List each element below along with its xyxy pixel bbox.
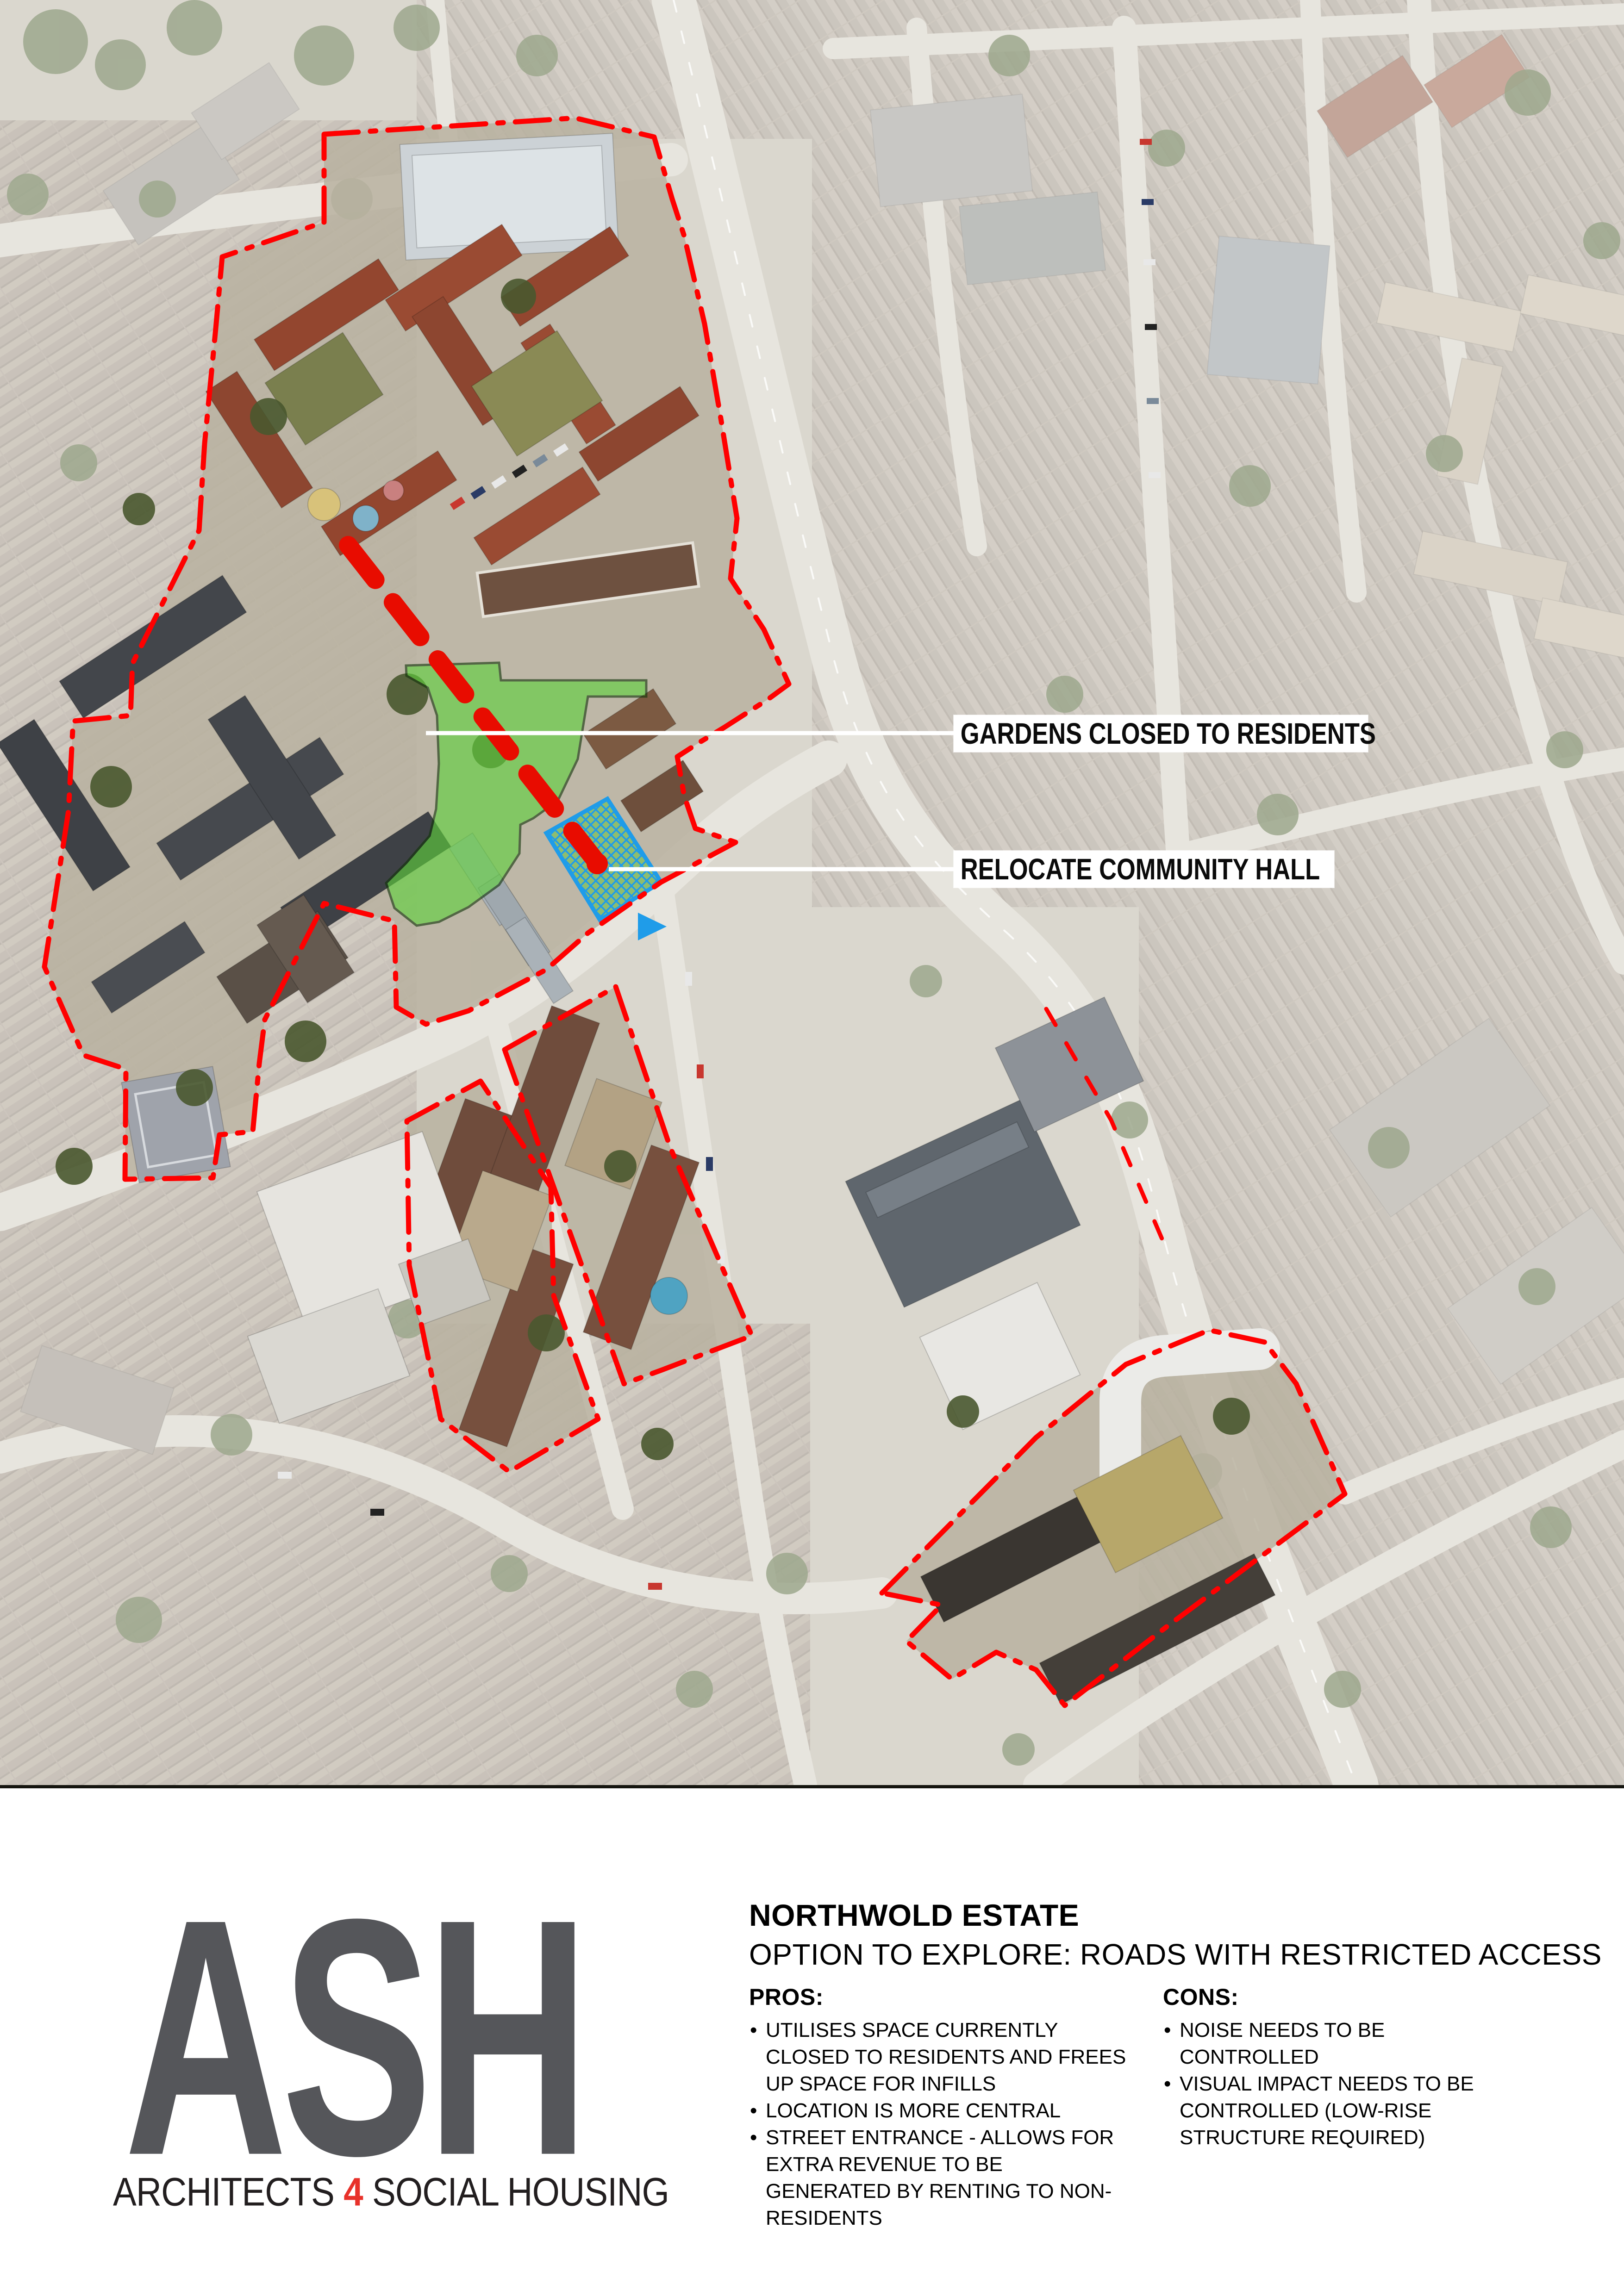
ash-tagline: ARCHITECTS 4 SOCIAL HOUSING <box>113 2170 669 2215</box>
tagline-architects: ARCHITECTS <box>113 2170 334 2215</box>
page-subtitle: OPTION TO EXPLORE: ROADS WITH RESTRICTED… <box>749 1937 1602 1972</box>
relocate-callout-text: RELOCATE COMMUNITY HALL <box>954 852 1320 886</box>
tagline-4: 4 <box>344 2170 362 2215</box>
pros-item: LOCATION IS MORE CENTRAL <box>749 2097 1129 2124</box>
poster-page: GARDENS CLOSED TO RESIDENTS RELOCATE COM… <box>0 0 1624 2296</box>
pros-list: UTILISES SPACE CURRENTLY CLOSED TO RESID… <box>749 2017 1129 2232</box>
cons-item: VISUAL IMPACT NEEDS TO BE CONTROLLED (LO… <box>1163 2071 1505 2151</box>
cons-column: CONS: NOISE NEEDS TO BE CONTROLLED VISUA… <box>1163 1984 1580 2151</box>
page-title: NORTHWOLD ESTATE <box>749 1898 1079 1933</box>
tagline-social-housing: SOCIAL HOUSING <box>372 2170 669 2215</box>
gardens-callout: GARDENS CLOSED TO RESIDENTS <box>954 715 1368 752</box>
cons-item: NOISE NEEDS TO BE CONTROLLED <box>1163 2017 1505 2071</box>
aerial-map: GARDENS CLOSED TO RESIDENTS RELOCATE COM… <box>0 0 1624 1788</box>
gardens-callout-text: GARDENS CLOSED TO RESIDENTS <box>954 716 1376 751</box>
pros-item: STREET ENTRANCE - ALLOWS FOR EXTRA REVEN… <box>749 2124 1129 2232</box>
satellite-map-art <box>0 0 1624 1785</box>
relocate-callout: RELOCATE COMMUNITY HALL <box>954 851 1334 888</box>
pros-column: PROS: UTILISES SPACE CURRENTLY CLOSED TO… <box>749 1984 1147 2232</box>
pros-item: UTILISES SPACE CURRENTLY CLOSED TO RESID… <box>749 2017 1129 2097</box>
pros-heading: PROS: <box>749 1984 1147 2010</box>
ash-logo: ASH <box>124 1903 584 2172</box>
cons-heading: CONS: <box>1163 1984 1580 2010</box>
cons-list: NOISE NEEDS TO BE CONTROLLED VISUAL IMPA… <box>1163 2017 1505 2151</box>
